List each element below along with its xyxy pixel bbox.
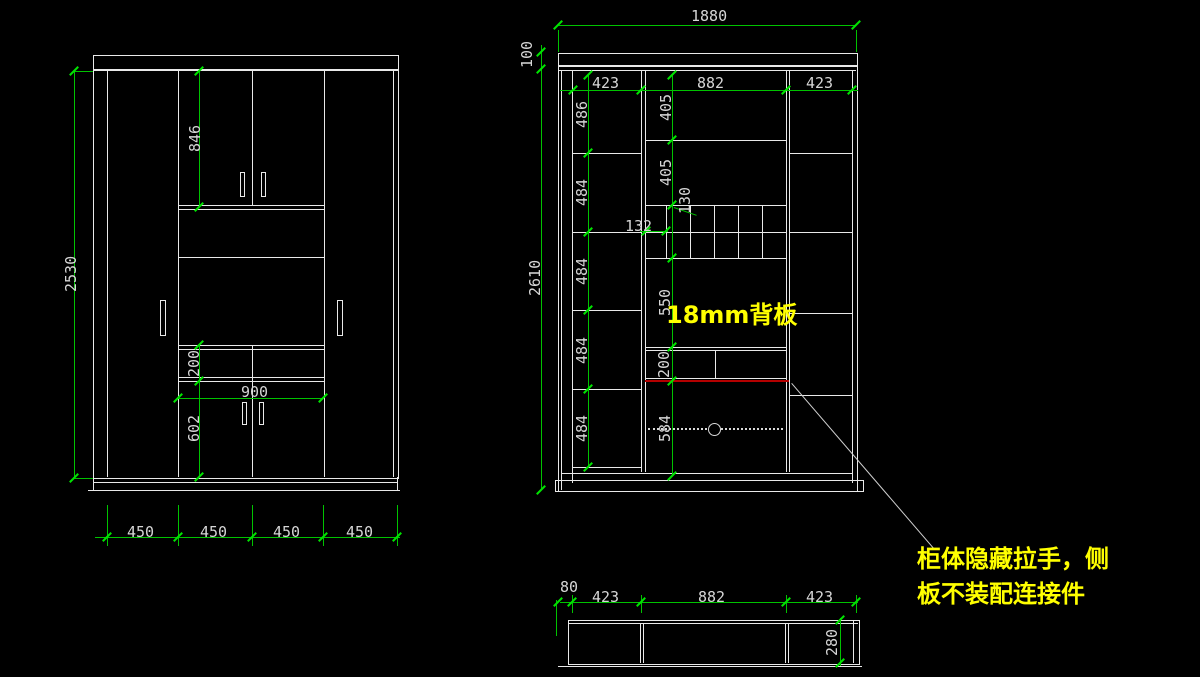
dim-ext-line	[856, 595, 857, 613]
door-handle	[337, 300, 343, 336]
dim-ext-line	[178, 505, 179, 546]
dim-mid-height: 405	[657, 94, 675, 121]
door-divider-line	[324, 71, 325, 477]
shelf-line	[572, 153, 641, 154]
dim-ext-line	[572, 595, 573, 613]
partition-line	[640, 623, 641, 663]
dim-ext-line	[323, 505, 324, 546]
door-handle	[160, 300, 166, 336]
dim-section-width: 882	[697, 74, 724, 92]
upper-door-divider-line	[252, 71, 253, 205]
partition-line	[645, 70, 646, 472]
shelf-line	[789, 313, 852, 314]
dim-shelf-height: 484	[573, 337, 591, 364]
door-divider-line	[178, 71, 179, 477]
partition-line	[786, 70, 787, 472]
shelf-line	[645, 378, 786, 379]
side-panel-line	[852, 70, 853, 483]
dim-door-width: 450	[273, 523, 300, 541]
panel-line	[568, 623, 858, 624]
partition-line	[789, 70, 790, 472]
shelf-line	[572, 389, 641, 390]
cubby-shelf-line	[645, 258, 786, 259]
dim-line-total-width	[558, 25, 856, 26]
side-panel-line	[853, 620, 854, 663]
base-line	[88, 490, 400, 491]
dim-upper-door-height: 846	[186, 125, 204, 152]
plinth-line	[93, 482, 397, 483]
dim-ext-line	[856, 30, 857, 52]
shelf-line	[572, 310, 641, 311]
dim-section-width: 423	[592, 74, 619, 92]
door-handle	[240, 172, 245, 197]
bottom-panel-line	[561, 473, 852, 474]
dim-ext-line	[558, 30, 559, 52]
door-handle	[259, 402, 264, 425]
dim-depth: 280	[823, 629, 841, 656]
dim-ext-line	[397, 505, 398, 546]
shelf-line	[645, 140, 786, 141]
dim-section-width: 423	[806, 74, 833, 92]
dim-cubby-depth: 130	[676, 187, 694, 214]
dim-ext-line	[556, 600, 557, 636]
shelf-line	[572, 467, 641, 468]
drawer-divider-line	[715, 350, 716, 378]
dim-shelf-height: 484	[573, 179, 591, 206]
dim-shelf-height: 484	[573, 258, 591, 285]
dim-ext-line	[641, 595, 642, 613]
partition-line	[785, 623, 786, 663]
annotation-text-line1: 柜体隐藏拉手，侧	[917, 542, 1109, 577]
dim-ext-line	[786, 595, 787, 613]
shelf-line	[789, 395, 852, 396]
cubby-divider-line	[738, 205, 739, 258]
shelf-line	[178, 257, 324, 258]
partition-line	[788, 623, 789, 663]
dim-lower-door-height: 602	[185, 415, 203, 442]
side-panel-line	[107, 71, 108, 477]
shelf-line	[789, 232, 852, 233]
dim-ext-line	[74, 478, 93, 479]
cubby-divider-line	[714, 205, 715, 258]
dim-ext-line	[74, 71, 93, 72]
dim-mid-height: 405	[657, 159, 675, 186]
dim-door-width: 450	[200, 523, 227, 541]
side-panel-line	[561, 70, 562, 490]
dim-mid-height: 584	[656, 415, 674, 442]
dim-section-width: 423	[592, 588, 619, 606]
hanging-rod-symbol	[708, 423, 721, 436]
dim-body-height: 2610	[526, 260, 544, 296]
shelf-line	[645, 347, 786, 348]
dim-shelf-height: 486	[573, 101, 591, 128]
dim-cubby-width: 132	[625, 217, 652, 235]
door-handle	[261, 172, 266, 197]
dim-ext-line	[252, 505, 253, 546]
dim-front-height: 2530	[62, 256, 80, 292]
dim-edge-offset: 80	[560, 578, 578, 596]
top-view-outline	[568, 620, 860, 665]
dim-ext-line	[107, 505, 108, 546]
dim-mid-height: 200	[655, 351, 673, 378]
lower-door-divider-line	[252, 345, 253, 477]
dim-shelf-height: 484	[573, 415, 591, 442]
cad-drawing-canvas: 2530 846 200 602 900 450 450 450 450	[0, 0, 1200, 677]
dim-drawer-height: 200	[185, 350, 203, 377]
plinth-side-line	[93, 477, 94, 490]
plinth-side-line	[397, 477, 398, 490]
cubby-divider-line	[762, 205, 763, 258]
partition-line	[643, 623, 644, 663]
dim-door-width: 450	[346, 523, 373, 541]
side-panel-line	[393, 71, 394, 477]
door-handle	[242, 402, 247, 425]
dim-opening-width: 900	[241, 383, 268, 401]
dim-total-width: 1880	[691, 7, 727, 25]
base-line	[558, 666, 862, 667]
annotation-text-line2: 板不装配连接件	[917, 577, 1109, 612]
dim-section-width: 882	[698, 588, 725, 606]
dim-door-width: 450	[127, 523, 154, 541]
dim-section-width: 423	[806, 588, 833, 606]
carcass-top-line	[558, 70, 856, 71]
back-panel-note: 18mm背板	[666, 295, 797, 330]
partition-line	[641, 70, 642, 472]
shelf-line	[789, 153, 852, 154]
dim-top-panel-height: 100	[518, 41, 536, 68]
hidden-handle-highlight-line	[645, 380, 789, 382]
plinth-outline	[555, 480, 864, 492]
shelf-line	[178, 209, 324, 210]
